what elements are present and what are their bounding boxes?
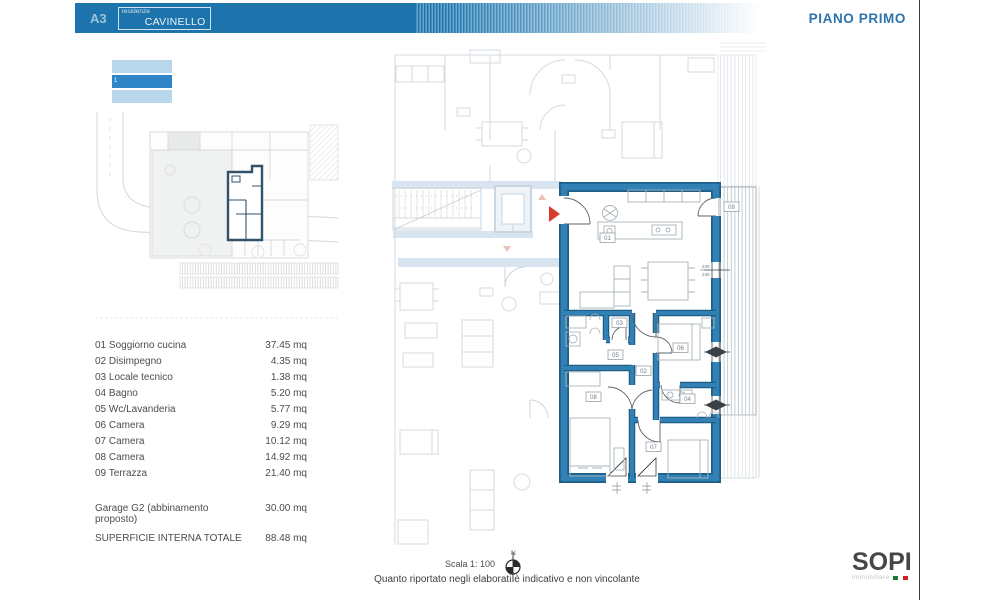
room-name: 01 Soggiorno cucina xyxy=(95,340,186,351)
room-area: 37.45 mq xyxy=(245,340,307,351)
floor-bar-upper xyxy=(112,60,172,73)
legend-row: 01 Soggiorno cucina37.45 mq xyxy=(95,338,307,354)
background-units xyxy=(392,43,766,545)
terrace-deck xyxy=(719,187,759,478)
svg-text:04: 04 xyxy=(684,397,691,403)
room-name: 03 Locale tecnico xyxy=(95,372,173,383)
stairwell xyxy=(393,188,481,230)
svg-text:N: N xyxy=(511,550,516,557)
legend-row: 02 Disimpegno4.35 mq xyxy=(95,354,307,370)
legend-row: 06 Camera9.29 mq xyxy=(95,417,307,433)
header-bar: A3 residenze CAVINELLO xyxy=(75,3,415,33)
room-area: 1.38 mq xyxy=(245,372,307,383)
logo-red-square-icon xyxy=(903,576,908,580)
room-area: 21.40 mq xyxy=(245,468,307,479)
svg-text:09: 09 xyxy=(728,205,735,211)
garage-row: Garage G2 (abbinamento proposto) 30.00 m… xyxy=(95,503,307,525)
room-name: 05 Wc/Lavanderia xyxy=(95,404,176,415)
residence-label: residenze xyxy=(122,9,206,16)
floor-level-indicator: 1 xyxy=(112,60,172,105)
room-legend: 01 Soggiorno cucina37.45 mq 02 Disimpegn… xyxy=(95,338,307,481)
residence-name: CAVINELLO xyxy=(122,17,206,27)
room-area: 9.29 mq xyxy=(245,420,307,431)
residence-box: residenze CAVINELLO xyxy=(118,7,211,30)
room-area: 14.92 mq xyxy=(245,452,307,463)
legend-row: 05 Wc/Lavanderia5.77 mq xyxy=(95,402,307,418)
room-name: 04 Bagno xyxy=(95,388,138,399)
dimension-marks: 240 240 xyxy=(700,264,716,277)
neighbour-entry-marker xyxy=(503,246,511,252)
svg-text:06: 06 xyxy=(677,346,684,352)
elevator xyxy=(495,186,531,232)
logo-wordmark: SOPI xyxy=(852,550,918,574)
room-area: 5.20 mq xyxy=(245,388,307,399)
header-stripe-fade xyxy=(415,3,765,33)
company-logo: SOPI immobiliare xyxy=(852,550,918,581)
entry-arrow-icon xyxy=(549,206,560,222)
svg-text:05: 05 xyxy=(612,353,619,359)
svg-text:07: 07 xyxy=(650,445,657,451)
floor-bar-selected: 1 xyxy=(112,75,172,88)
room-name: 06 Camera xyxy=(95,420,144,431)
legend-row: 09 Terrazza21.40 mq xyxy=(95,465,307,481)
svg-text:08: 08 xyxy=(590,395,597,401)
room-area: 4.35 mq xyxy=(245,356,307,367)
total-row: SUPERFICIE INTERNA TOTALE 88.48 mq xyxy=(95,533,307,544)
floor-plan: 240 240 01 02 03 04 05 06 07 08 09 xyxy=(385,40,770,545)
legend-row: 04 Bagno5.20 mq xyxy=(95,386,307,402)
drawing-sheet: A3 residenze CAVINELLO PIANO PRIMO 1 xyxy=(0,0,1000,600)
door-swings xyxy=(564,198,716,442)
disclaimer: Quanto riportato negli elaborati è indic… xyxy=(357,574,657,585)
site-highlight-unit xyxy=(228,166,262,240)
room-name: 07 Camera xyxy=(95,436,144,447)
sheet-margin-rule xyxy=(919,0,920,600)
total-area: 88.48 mq xyxy=(245,533,307,544)
sheet-code: A3 xyxy=(75,11,107,26)
room-name: 09 Terrazza xyxy=(95,468,147,479)
apartment-walls xyxy=(564,187,716,478)
garage-area: 30.00 mq xyxy=(247,503,307,525)
furniture xyxy=(566,190,719,478)
svg-text:02: 02 xyxy=(640,369,647,375)
floor-title: PIANO PRIMO xyxy=(786,11,906,26)
legend-row: 08 Camera14.92 mq xyxy=(95,449,307,465)
svg-text:240: 240 xyxy=(702,264,710,269)
neighbour-entry-marker xyxy=(538,194,546,200)
logo-tagline-text: immobiliare xyxy=(852,574,890,581)
total-label: SUPERFICIE INTERNA TOTALE xyxy=(95,533,242,544)
room-area: 10.12 mq xyxy=(245,436,307,447)
garage-label: Garage G2 (abbinamento proposto) xyxy=(95,503,247,525)
room-area: 5.77 mq xyxy=(245,404,307,415)
svg-text:03: 03 xyxy=(616,321,623,327)
svg-text:240: 240 xyxy=(702,272,710,277)
legend-row: 03 Locale tecnico1.38 mq xyxy=(95,370,307,386)
svg-text:01: 01 xyxy=(604,236,611,242)
site-plan-map xyxy=(93,110,341,325)
room-name: 08 Camera xyxy=(95,452,144,463)
room-name: 02 Disimpegno xyxy=(95,356,162,367)
scale-note: Scala 1: 100 xyxy=(445,559,495,569)
logo-green-square-icon xyxy=(893,576,898,580)
legend-row: 07 Camera10.12 mq xyxy=(95,433,307,449)
floor-bar-lower xyxy=(112,90,172,103)
